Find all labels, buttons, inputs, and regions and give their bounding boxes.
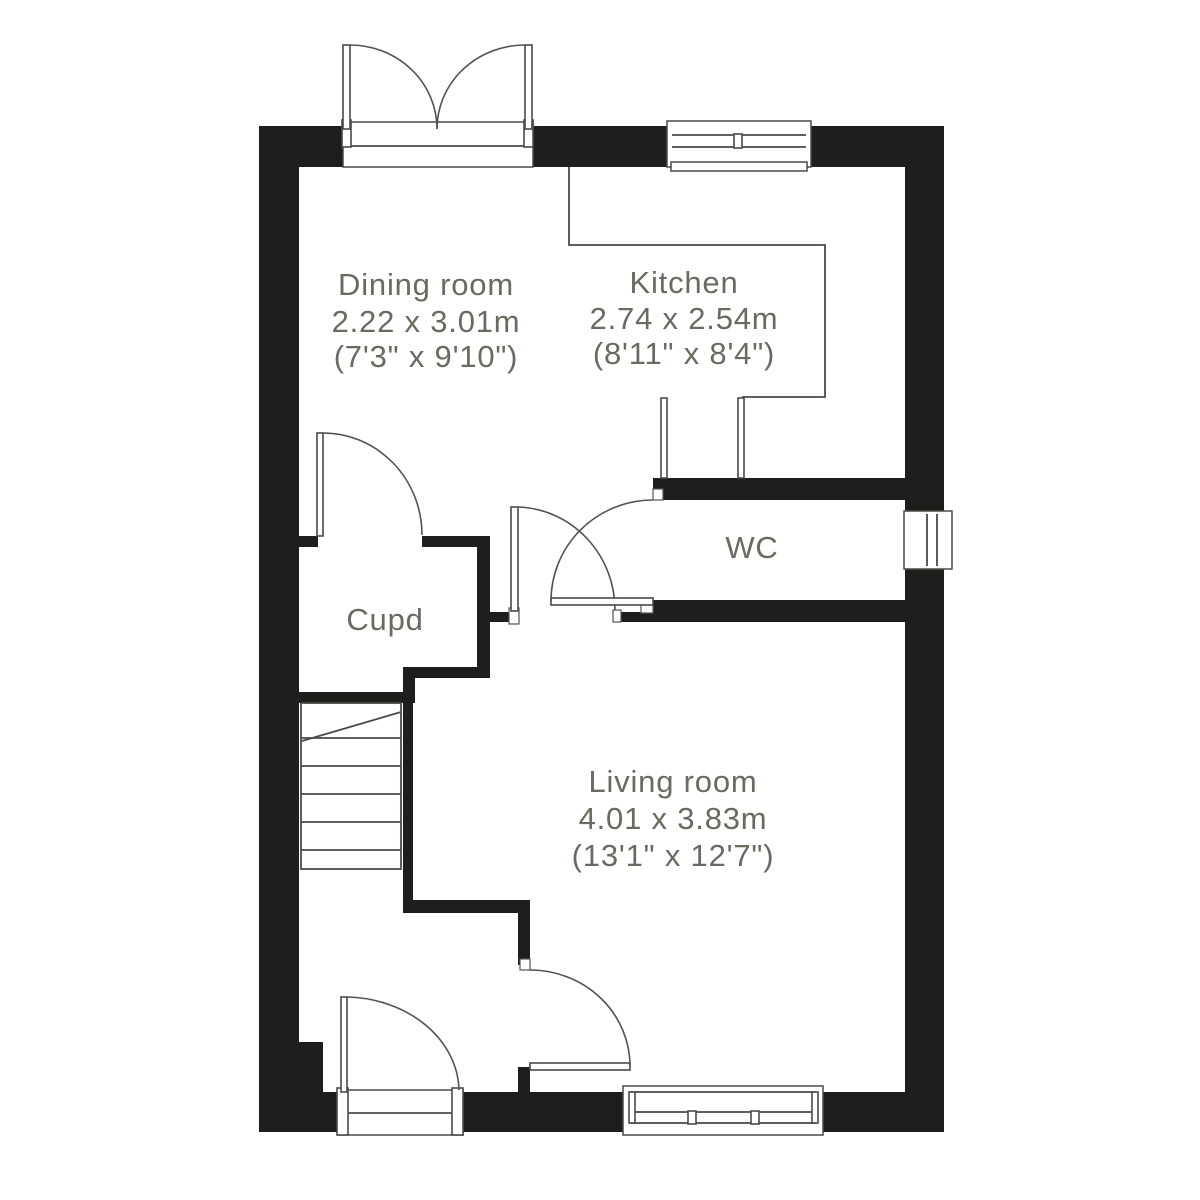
cupboard-door [317,433,422,536]
french-door-left-leaf [343,45,350,129]
right-wall-upper [905,126,944,512]
wc-window [904,511,952,569]
kitchen-opening-right-post [738,398,744,478]
cupboard-right-wall [477,536,490,667]
left-wall [259,126,299,1092]
lower-living-door-top-frame [520,959,530,970]
dining-room-metric-dimensions: 2.22 x 3.01m [332,304,521,339]
living-window-mullion-right [751,1111,759,1124]
stairs-right-wall [403,692,413,913]
stairs-break-line [302,712,401,741]
cupboard-top-wall-east [422,536,477,547]
dining-room-label: Dining room [338,267,514,302]
front-door-left-post [337,1088,348,1135]
living-window-left-jamb [629,1092,635,1123]
lower-living-door-leaf [530,1063,630,1070]
hall-bottom-wall [403,900,530,913]
living-room-imperial-dimensions: (13'1" x 12'7") [572,838,775,873]
left-wall-step [259,1042,323,1092]
kitchen-label: Kitchen [630,265,739,300]
top-wall-right [809,126,905,167]
cupboard-door-swing-arc [323,433,422,535]
front-door-leaf [341,997,347,1092]
kitchen-metric-dimensions: 2.74 x 2.54m [590,301,779,336]
living-window-mullion-left [688,1111,696,1124]
wc-top-wall [653,478,905,500]
kitchen-window [667,121,811,171]
dining-room-imperial-dimensions: (7'3" x 9'10") [334,339,519,374]
staircase [301,703,401,869]
cupboard-bottom-wall [403,667,490,678]
living-door-stub-wall [518,1067,530,1092]
front-door-swing-arc [347,997,459,1090]
french-doors [342,45,533,167]
living-room-metric-dimensions: 4.01 x 3.83m [579,801,768,836]
stair-treads [301,738,401,850]
living-room-door-upper [511,507,615,611]
door-frames [509,489,663,970]
wc-door [551,500,653,605]
floor-plan-drawing: Dining room 2.22 x 3.01m (7'3" x 9'10") … [0,0,1200,1200]
upper-living-door-leaf [511,507,518,611]
cupboard-top-wall-west [299,536,318,547]
wc-door-swing-arc [551,500,653,601]
hall-door-stub-wall [518,913,530,965]
kitchen-imperial-dimensions: (8'11" x 8'4") [593,336,775,371]
front-door-right-post [452,1088,463,1135]
top-wall-middle [532,126,669,167]
wc-bottom-wall [653,600,905,622]
cupboard-door-leaf [317,433,323,536]
upper-living-door-right-frame [613,610,621,622]
stairs-outline [301,703,401,869]
french-door-threshold [343,122,533,167]
french-door-right-swing-arc [437,45,525,129]
front-door [337,997,463,1135]
wc-door-leaf [551,598,653,605]
floor-plan: Dining room 2.22 x 3.01m (7'3" x 9'10") … [0,0,1200,1200]
room-labels: Dining room 2.22 x 3.01m (7'3" x 9'10") … [332,265,779,873]
living-window-frame [623,1086,823,1135]
wc-window-frame [904,511,952,569]
bottom-wall-right [823,1092,905,1132]
french-door-left-swing-arc [350,45,437,129]
stairs-top-wall [298,692,415,703]
kitchen-window-mullion [734,134,742,148]
kitchen-opening-left-post [661,398,667,478]
cupboard-label: Cupd [346,602,423,637]
wc-label: WC [725,530,778,565]
living-room-window [623,1086,823,1135]
kitchen-window-inner-sill [671,162,807,171]
right-wall-lower [905,568,944,1132]
bottom-wall-left [259,1092,338,1132]
wc-door-top-frame [653,489,663,500]
living-room-label: Living room [588,764,757,799]
french-door-right-leaf [525,45,532,129]
bottom-wall-middle [463,1092,623,1132]
upper-living-door-swing-arc [518,507,615,610]
living-room-door-lower [530,970,630,1070]
lower-living-door-swing-arc [530,970,630,1066]
living-window-right-jamb [812,1092,818,1123]
